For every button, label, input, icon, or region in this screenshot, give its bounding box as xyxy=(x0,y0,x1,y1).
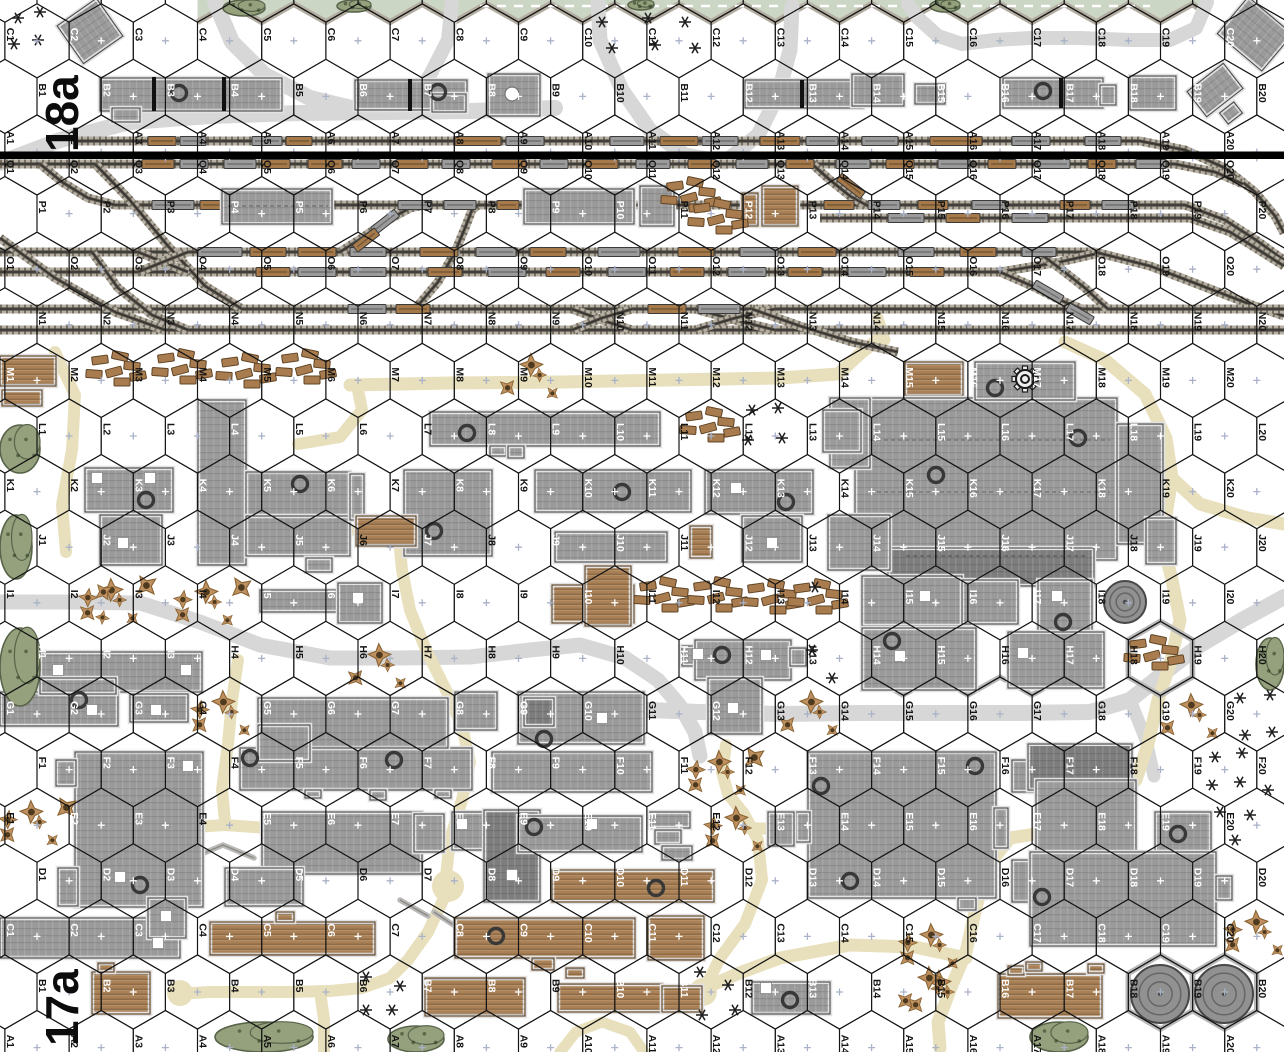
hex-label: B4 xyxy=(229,83,241,97)
rubble-star-icon xyxy=(729,1005,741,1015)
hex-center-dot xyxy=(740,37,747,44)
hex-center-dot xyxy=(419,599,426,606)
hex-label: J4 xyxy=(229,534,241,546)
hex-wargame-map[interactable]: C1C2C3C4C5C6C7C8C9C10C11C12C13C14C15C16C… xyxy=(0,0,1284,1052)
hex-label: A5 xyxy=(261,1035,273,1049)
hex-label: C7 xyxy=(389,28,401,42)
hex-label: M10 xyxy=(582,367,594,388)
hex-label: L11 xyxy=(678,423,690,441)
hex-center-dot xyxy=(1189,1044,1196,1051)
hex-label: G8 xyxy=(453,701,465,715)
hex-partial[interactable] xyxy=(0,844,37,918)
rubble-star-icon xyxy=(1234,777,1246,787)
hex-label: C9 xyxy=(518,923,530,937)
hex-label: H2 xyxy=(100,645,112,659)
hex-center-dot xyxy=(676,37,683,44)
hex-label: F15 xyxy=(935,757,947,775)
hex-label: A18 xyxy=(1095,131,1107,150)
hex-label: G5 xyxy=(261,701,273,715)
hex-label: J9 xyxy=(550,534,562,546)
hex-label: D14 xyxy=(871,868,883,887)
hex-label: B12 xyxy=(742,979,754,998)
hex-label: F6 xyxy=(357,757,369,769)
hex-label: J15 xyxy=(935,534,947,552)
hex-label: D16 xyxy=(999,868,1011,887)
hex-label: A14 xyxy=(839,131,851,150)
hex-label: A18 xyxy=(1095,1035,1107,1052)
hex-label: C4 xyxy=(197,923,209,937)
stairway-square-icon xyxy=(151,705,162,716)
hex-label: H15 xyxy=(935,645,947,664)
hex-label: C5 xyxy=(261,28,273,42)
hex-label: N18 xyxy=(1128,312,1140,331)
hex-label: L13 xyxy=(807,423,819,441)
hex-label: Q14 xyxy=(839,160,851,180)
stairway-square-icon xyxy=(507,870,518,881)
hex-label: M17 xyxy=(1031,367,1043,388)
hex-label: D20 xyxy=(1256,868,1268,887)
hex-label: A20 xyxy=(1224,131,1236,150)
hex-center-dot xyxy=(226,599,233,606)
hex-partial[interactable] xyxy=(0,788,5,862)
hex-label: P18 xyxy=(1128,201,1140,220)
hex-label: A1 xyxy=(4,131,16,145)
hex-label: K13 xyxy=(774,479,786,498)
stairway-square-icon xyxy=(1052,591,1063,602)
hex-label: B6 xyxy=(357,979,369,993)
rubble-star-icon xyxy=(1239,730,1251,740)
hex-center-dot xyxy=(804,37,811,44)
hex-label: K5 xyxy=(261,479,273,493)
hex-label: G4 xyxy=(197,701,209,715)
hex-label: L7 xyxy=(421,423,433,435)
hex-label: K18 xyxy=(1095,479,1107,498)
hex-label: A4 xyxy=(197,1035,209,1049)
hex-center-dot xyxy=(579,93,586,100)
hex-center-dot xyxy=(1253,377,1260,384)
hex-label: B9 xyxy=(550,979,562,993)
hex-label: G7 xyxy=(389,701,401,715)
hex-label: H7 xyxy=(421,645,433,659)
hex-label: A20 xyxy=(1224,1035,1236,1052)
hex-label: M16 xyxy=(967,367,979,388)
hex-label: I15 xyxy=(903,590,915,605)
hex-label: K11 xyxy=(646,479,658,498)
hex-label: L10 xyxy=(614,423,626,441)
hex-label: P16 xyxy=(999,201,1011,220)
hex-label: C11 xyxy=(646,28,658,47)
hex-label: C19 xyxy=(1160,923,1172,942)
hex-label: M5 xyxy=(261,367,273,382)
hex-label: E13 xyxy=(774,812,786,831)
hex-label: M7 xyxy=(389,367,401,382)
hex-label: J19 xyxy=(1192,534,1204,552)
hex-label: C3 xyxy=(132,923,144,937)
hex-label: D7 xyxy=(421,868,433,882)
hex-label: C17 xyxy=(1031,923,1043,942)
hex-label: H1 xyxy=(36,645,48,659)
hex-label: F11 xyxy=(678,757,690,775)
hex-label: B11 xyxy=(678,83,690,102)
stairway-square-icon xyxy=(87,705,98,716)
hex-center-dot xyxy=(387,989,394,996)
hex-label: P9 xyxy=(550,201,562,214)
hex-partial[interactable] xyxy=(0,733,37,807)
hex-center-dot xyxy=(1189,377,1196,384)
hex-label: G19 xyxy=(1160,701,1172,721)
hex-label: B17 xyxy=(1063,83,1075,102)
stairway-square-icon xyxy=(92,473,103,484)
rubble-star-icon xyxy=(360,1005,372,1015)
hex-label: B6 xyxy=(357,83,369,97)
hex-label: A6 xyxy=(325,131,337,145)
hex-label: C18 xyxy=(1095,923,1107,942)
hex-label: O15 xyxy=(903,256,915,276)
hex-label: A8 xyxy=(453,1035,465,1049)
hex-label: J14 xyxy=(871,534,883,552)
hex-label: H17 xyxy=(1063,645,1075,664)
hex-label: C1 xyxy=(4,923,16,937)
hex-label: N7 xyxy=(421,312,433,326)
hex-label: A7 xyxy=(389,1035,401,1049)
hex-label: D5 xyxy=(293,868,305,882)
hex-center-dot xyxy=(1189,599,1196,606)
hex-label: I4 xyxy=(197,590,209,599)
hex-label: L18 xyxy=(1128,423,1140,441)
hex-center-dot xyxy=(740,1044,747,1051)
stairway-square-icon xyxy=(145,473,156,484)
hex-label: N4 xyxy=(229,312,241,326)
hex-center-dot xyxy=(66,210,73,217)
hex-label: O7 xyxy=(389,256,401,270)
rubble-star-icon xyxy=(1236,748,1248,758)
hex-label: I19 xyxy=(1160,590,1172,605)
hex-label: B10 xyxy=(614,83,626,102)
rubble-star-icon xyxy=(1206,780,1218,790)
hex-center-dot xyxy=(162,1044,169,1051)
hex-label: H9 xyxy=(550,645,562,659)
hex-label: C11 xyxy=(646,923,658,942)
hex-center-dot xyxy=(258,433,265,440)
hex-center-dot xyxy=(483,37,490,44)
hex-center-dot xyxy=(387,433,394,440)
hex-label: F1 xyxy=(36,757,48,769)
hex-center-dot xyxy=(900,989,907,996)
hex-label: C13 xyxy=(774,923,786,942)
hex-label: H10 xyxy=(614,645,626,664)
stairway-square-icon xyxy=(1018,648,1029,659)
hex-label: A12 xyxy=(710,1035,722,1052)
hex-label: D15 xyxy=(935,868,947,887)
fuel-tank xyxy=(1104,581,1146,623)
hex-label: N6 xyxy=(357,312,369,326)
stairway-square-icon xyxy=(761,983,772,994)
hex-center-dot xyxy=(258,655,265,662)
rubble-star-icon xyxy=(679,17,691,27)
hex-label: B13 xyxy=(807,83,819,102)
hex-label: O8 xyxy=(453,256,465,270)
hex-label: G10 xyxy=(582,701,594,721)
hex-label: Q20 xyxy=(1224,160,1236,180)
hex-label: M4 xyxy=(197,367,209,382)
hex-label: B13 xyxy=(807,979,819,998)
hex-label: A17 xyxy=(1031,131,1043,150)
hex-partial[interactable] xyxy=(0,955,37,1029)
hex-label: O12 xyxy=(710,256,722,276)
hex-label: F14 xyxy=(871,757,883,775)
hex-center-dot xyxy=(290,377,297,384)
hex-label: O18 xyxy=(1095,256,1107,276)
hex-label: C15 xyxy=(903,923,915,942)
hex-label: H19 xyxy=(1192,645,1204,664)
hex-label: I2 xyxy=(68,590,80,599)
hex-label: J10 xyxy=(614,534,626,552)
hex-label: C6 xyxy=(325,923,337,937)
hex-label: M9 xyxy=(518,367,530,382)
hex-label: I17 xyxy=(1031,590,1043,605)
hex-center-dot xyxy=(355,1044,362,1051)
hex-label: I18 xyxy=(1095,590,1107,605)
hex-label: L8 xyxy=(486,423,498,435)
hex-label: B8 xyxy=(486,979,498,993)
hex-label: K17 xyxy=(1031,479,1043,498)
hex-label: C9 xyxy=(518,28,530,42)
tree-clump xyxy=(930,0,960,12)
hex-label: D12 xyxy=(742,868,754,887)
hex-label: E19 xyxy=(1160,812,1172,831)
hex-label: D11 xyxy=(678,868,690,887)
hex-label: N8 xyxy=(486,312,498,326)
hex-label: B9 xyxy=(550,83,562,97)
hex-label: C12 xyxy=(710,923,722,942)
hex-label: Q19 xyxy=(1160,160,1172,180)
hex-label: K2 xyxy=(68,479,80,493)
hex-label: B2 xyxy=(100,979,112,993)
hex-label: C4 xyxy=(197,28,209,42)
hex-label: G2 xyxy=(68,701,80,715)
hex-label: C7 xyxy=(389,923,401,937)
hex-label: N16 xyxy=(999,312,1011,331)
hex-label: A9 xyxy=(518,131,530,145)
hex-label: C5 xyxy=(261,923,273,937)
hex-label: E5 xyxy=(261,812,273,825)
hex-label: Q13 xyxy=(774,160,786,180)
hex-label: E1 xyxy=(4,812,16,825)
hex-label: E4 xyxy=(197,812,209,825)
hex-label: O17 xyxy=(1031,256,1043,276)
hex-label: P14 xyxy=(871,201,883,220)
hex-label: A5 xyxy=(261,131,273,145)
hex-label: F17 xyxy=(1063,757,1075,775)
hex-label: P19 xyxy=(1192,201,1204,220)
hex-center-dot xyxy=(1125,1044,1132,1051)
hex-label: C16 xyxy=(967,923,979,942)
hex-label: C15 xyxy=(903,28,915,47)
hex-center-dot xyxy=(772,766,779,773)
railroad-yard xyxy=(0,137,1284,353)
stairway-square-icon xyxy=(181,665,192,676)
hex-label: F7 xyxy=(421,757,433,769)
hex-label: B8 xyxy=(486,83,498,97)
hex-label: N15 xyxy=(935,312,947,331)
hex-label: Q15 xyxy=(903,160,915,180)
hex-label: J8 xyxy=(486,534,498,546)
hex-label: F9 xyxy=(550,757,562,769)
hex-label: M2 xyxy=(68,367,80,382)
hex-label: G16 xyxy=(967,701,979,721)
hex-center-dot xyxy=(1221,766,1228,773)
hex-label: B20 xyxy=(1256,83,1268,102)
hex-label: P7 xyxy=(421,201,433,214)
hex-label: N5 xyxy=(293,312,305,326)
hex-label: P1 xyxy=(36,201,48,214)
hex-label: H20 xyxy=(1256,645,1268,664)
hex-label: Q8 xyxy=(453,160,465,174)
hex-label: D9 xyxy=(550,868,562,882)
hex-center-dot xyxy=(1253,933,1260,940)
hex-label: O10 xyxy=(582,256,594,276)
hex-label: Q7 xyxy=(389,160,401,174)
hex-label: I1 xyxy=(4,590,16,599)
hex-label: F4 xyxy=(229,757,241,769)
hex-label: K9 xyxy=(518,479,530,493)
hex-center-dot xyxy=(98,1044,105,1051)
hex-label: E12 xyxy=(710,812,722,831)
hex-center-dot xyxy=(515,544,522,551)
hex-label: Q10 xyxy=(582,160,594,180)
hex-center-dot xyxy=(804,1044,811,1051)
hex-label: H16 xyxy=(999,645,1011,664)
hex-label: O6 xyxy=(325,256,337,270)
hex-partial[interactable] xyxy=(0,59,37,133)
hex-label: J2 xyxy=(100,534,112,546)
hex-label: L4 xyxy=(229,423,241,435)
hex-label: K6 xyxy=(325,479,337,493)
hex-label: H3 xyxy=(165,645,177,659)
rubble-star-icon xyxy=(394,981,406,991)
hex-label: A14 xyxy=(839,1035,851,1052)
hex-label: Q3 xyxy=(132,160,144,174)
hex-label: K12 xyxy=(710,479,722,498)
hex-label: A6 xyxy=(325,1035,337,1049)
hex-label: E9 xyxy=(518,812,530,825)
hex-label: F10 xyxy=(614,757,626,775)
hex-label: L16 xyxy=(999,423,1011,441)
hex-label: J6 xyxy=(357,534,369,546)
hex-label: I6 xyxy=(325,590,337,599)
hex-label: E8 xyxy=(453,812,465,825)
hex-label: B15 xyxy=(935,979,947,998)
hex-label: G11 xyxy=(646,701,658,720)
hex-label: H11 xyxy=(678,645,690,664)
hex-label: F18 xyxy=(1128,757,1140,775)
hex-label: O14 xyxy=(839,256,851,276)
hex-label: F13 xyxy=(807,757,819,775)
rubble-star-icon xyxy=(772,403,784,413)
hex-label: N13 xyxy=(807,312,819,331)
hex-label: E7 xyxy=(389,812,401,825)
hex-label: A19 xyxy=(1160,131,1172,150)
hex-center-dot xyxy=(483,1044,490,1051)
hex-label: H5 xyxy=(293,645,305,659)
hex-label: G18 xyxy=(1095,701,1107,721)
hex-label: O9 xyxy=(518,256,530,270)
hex-label: D19 xyxy=(1192,868,1204,887)
hex-label: E14 xyxy=(839,812,851,831)
stairway-square-icon xyxy=(153,938,164,949)
tree-clump xyxy=(628,0,654,10)
hex-center-dot xyxy=(964,989,971,996)
hex-label: F8 xyxy=(486,757,498,769)
hex-label: B16 xyxy=(999,979,1011,998)
hex-label: N19 xyxy=(1192,312,1204,331)
hex-label: C14 xyxy=(839,28,851,47)
hex-label: I20 xyxy=(1224,590,1236,605)
hex-label: A3 xyxy=(132,1035,144,1049)
hex-label: Q4 xyxy=(197,160,209,174)
hex-label: E3 xyxy=(132,812,144,825)
hex-label: C16 xyxy=(967,28,979,47)
hex-label: M11 xyxy=(646,367,658,387)
hex-label: B11 xyxy=(678,979,690,998)
hex-label: Q1 xyxy=(4,160,16,174)
hex-center-dot xyxy=(419,37,426,44)
hex-center-dot xyxy=(868,1044,875,1051)
hex-label: L14 xyxy=(871,423,883,441)
hex-center-dot xyxy=(1253,1044,1260,1051)
hex-label: I3 xyxy=(132,590,144,599)
board-label-17a: 17a xyxy=(36,969,88,1046)
hex-label: D6 xyxy=(357,868,369,882)
hex-center-dot xyxy=(130,433,137,440)
hex-label: A10 xyxy=(582,131,594,150)
hex-label: O16 xyxy=(967,256,979,276)
hex-center-dot xyxy=(483,599,490,606)
rubble-star-icon xyxy=(689,43,701,53)
hex-label: L3 xyxy=(165,423,177,435)
hex-label: L1 xyxy=(36,423,48,435)
hex-label: J5 xyxy=(293,534,305,546)
hex-label: M15 xyxy=(903,367,915,388)
hex-label: K20 xyxy=(1224,479,1236,498)
hex-label: A13 xyxy=(774,131,786,150)
hex-label: B7 xyxy=(421,979,433,993)
hex-label: B5 xyxy=(293,979,305,993)
hex-label: O20 xyxy=(1224,256,1236,276)
hex-label: Q2 xyxy=(68,160,80,174)
hex-label: G14 xyxy=(839,701,851,721)
hex-partial[interactable] xyxy=(0,288,37,362)
hex-center-dot xyxy=(451,210,458,217)
hex-center-dot xyxy=(1189,266,1196,273)
hex-label: B14 xyxy=(871,83,883,102)
hex-label: I13 xyxy=(774,590,786,605)
hex-label: D8 xyxy=(486,868,498,882)
hex-label: E2 xyxy=(68,812,80,825)
rubble-star-icon xyxy=(32,35,44,45)
hex-label: C12 xyxy=(710,28,722,47)
hex-label: J11 xyxy=(678,534,690,551)
hex-label: C8 xyxy=(453,28,465,42)
hex-center-dot xyxy=(1221,655,1228,662)
hex-label: D10 xyxy=(614,868,626,887)
rubble-star-icon xyxy=(776,433,788,443)
rubble-star-icon xyxy=(1262,785,1274,795)
hex-label: M14 xyxy=(839,367,851,388)
hex-label: N20 xyxy=(1256,312,1268,331)
hex-label: G12 xyxy=(710,701,722,721)
hex-center-dot xyxy=(322,877,329,884)
